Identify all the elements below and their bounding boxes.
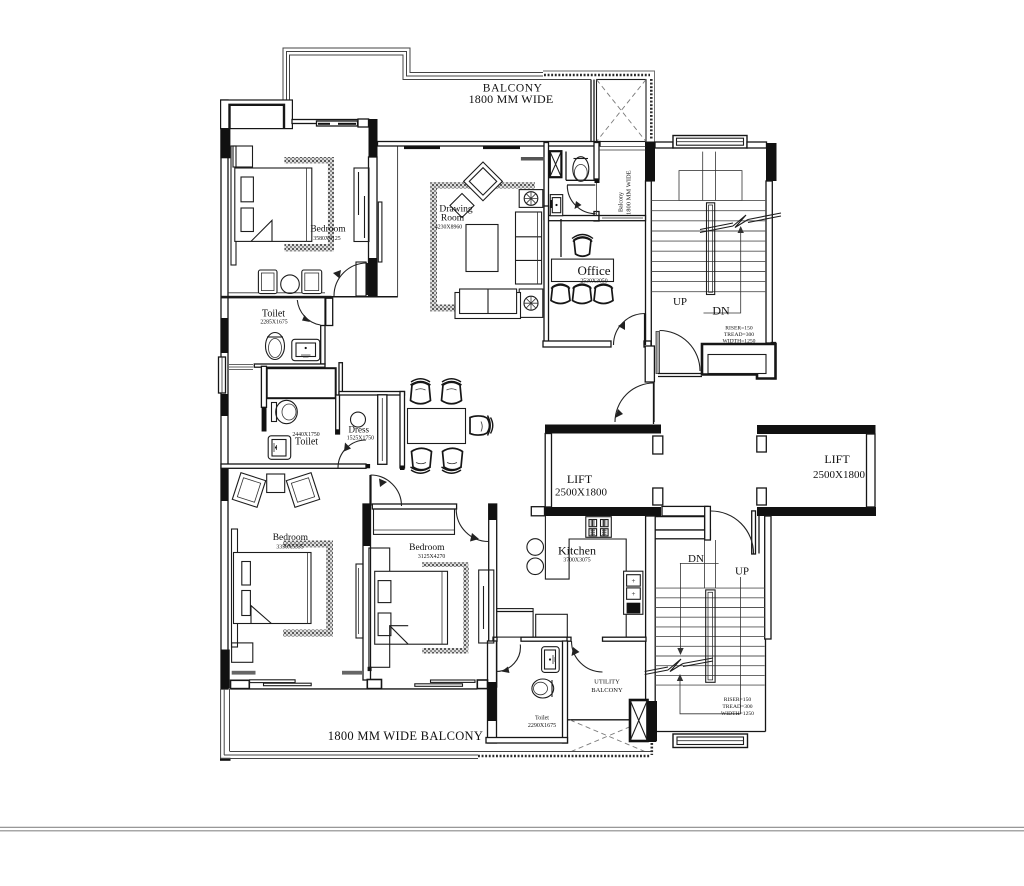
svg-text:Toilet: Toilet	[262, 309, 285, 320]
svg-text:3125X4270: 3125X4270	[418, 554, 445, 560]
svg-text:+: +	[632, 577, 636, 585]
svg-text:UP: UP	[673, 296, 687, 308]
svg-text:2500X1800: 2500X1800	[555, 487, 607, 499]
svg-text:LIFT: LIFT	[567, 472, 593, 486]
svg-text:Bedroom: Bedroom	[273, 533, 309, 543]
svg-text:UP: UP	[735, 566, 749, 578]
svg-text:2290X1675: 2290X1675	[528, 723, 556, 729]
svg-text:Toilet: Toilet	[535, 716, 549, 722]
svg-text:1525X1750: 1525X1750	[347, 435, 374, 441]
svg-text:RISER=150: RISER=150	[724, 697, 752, 703]
svg-text:1800 MM WIDE: 1800 MM WIDE	[469, 92, 554, 106]
svg-text:BALCONY: BALCONY	[591, 687, 623, 694]
svg-text:UTILITY: UTILITY	[594, 679, 620, 686]
svg-text:3700X3075: 3700X3075	[563, 558, 590, 564]
svg-text:2285X1675: 2285X1675	[260, 319, 287, 325]
svg-text:Room: Room	[441, 214, 465, 224]
svg-text:DN: DN	[712, 304, 730, 318]
svg-text:Kitchen: Kitchen	[558, 544, 596, 558]
svg-text:TREAD=300: TREAD=300	[722, 704, 752, 710]
svg-text:Dress: Dress	[349, 425, 370, 435]
svg-text:TREAD=300: TREAD=300	[724, 332, 754, 338]
svg-text:3580X4125: 3580X4125	[313, 236, 340, 242]
svg-text:WIDTH=1250: WIDTH=1250	[723, 339, 756, 345]
svg-text:Bedroom: Bedroom	[409, 543, 445, 553]
svg-text:1800 MM WIDE: 1800 MM WIDE	[626, 170, 633, 215]
svg-text:1800 MM WIDE BALCONY: 1800 MM WIDE BALCONY	[328, 729, 483, 743]
svg-text:Bedroom: Bedroom	[310, 225, 346, 235]
svg-text:WIDTH=1250: WIDTH=1250	[721, 711, 754, 717]
svg-text:Balcony: Balcony	[619, 192, 625, 212]
svg-text:2500X1800: 2500X1800	[813, 469, 865, 481]
svg-text:+: +	[632, 590, 636, 598]
svg-text:3350X5335: 3350X5335	[276, 545, 303, 551]
svg-text:LIFT: LIFT	[824, 452, 850, 466]
svg-text:RISER=150: RISER=150	[725, 326, 753, 332]
svg-text:Toilet: Toilet	[295, 437, 318, 448]
svg-text:4230X8960: 4230X8960	[435, 225, 462, 231]
svg-text:Office: Office	[578, 263, 611, 278]
